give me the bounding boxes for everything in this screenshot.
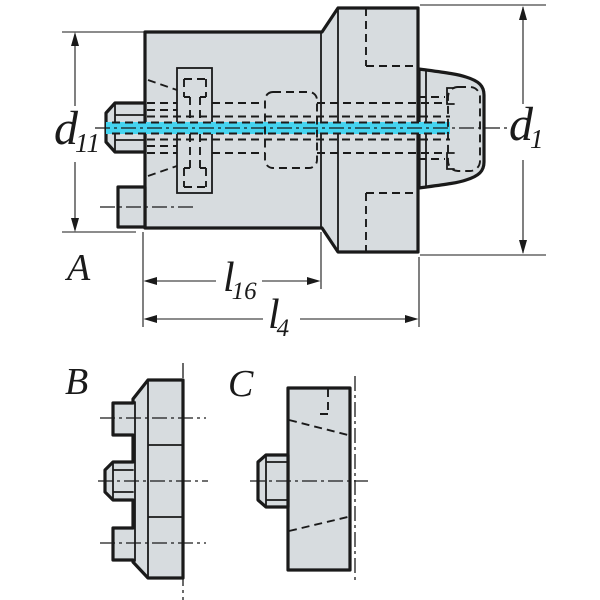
view-label-a: A xyxy=(67,249,90,287)
d11-subscript: 11 xyxy=(75,128,100,158)
view-c-body xyxy=(288,388,350,570)
l4-subscript: 4 xyxy=(277,315,290,342)
view-c xyxy=(250,376,368,582)
dimension-label-d1: d1 xyxy=(509,101,544,153)
d1-subscript: 1 xyxy=(530,124,544,154)
view-b xyxy=(98,363,208,600)
technical-drawing-svg xyxy=(0,0,600,600)
view-label-c: C xyxy=(228,365,253,403)
dimension-label-l4: l4 xyxy=(268,294,289,341)
l16-subscript: 16 xyxy=(232,278,257,305)
view-b-outline xyxy=(105,380,183,578)
dimension-label-d11: d11 xyxy=(54,105,100,157)
drawing-canvas: d11 d1 l16 l4 A B C xyxy=(0,0,600,600)
view-label-b: B xyxy=(65,363,88,401)
dimension-label-l16: l16 xyxy=(223,257,257,304)
main-view xyxy=(62,5,546,327)
